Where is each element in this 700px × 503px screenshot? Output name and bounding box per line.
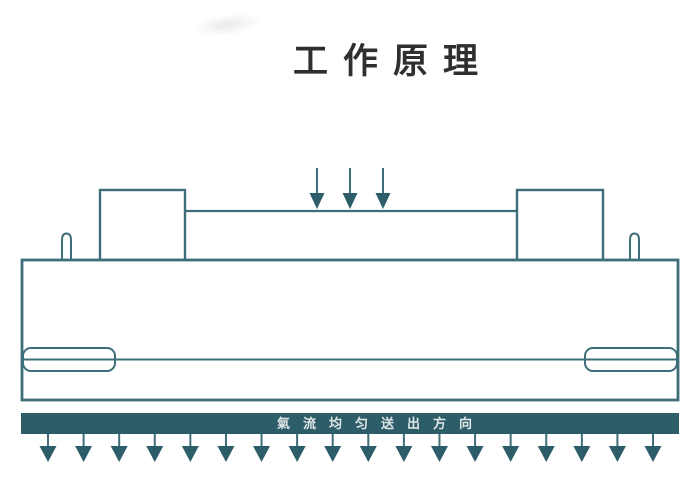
main-body-housing: [22, 260, 678, 400]
airflow-arrow-head: [111, 446, 128, 462]
bottom-outlet-airflow-arrows: [40, 434, 662, 462]
airflow-arrow-head: [360, 446, 377, 462]
right-pin: [630, 234, 639, 261]
airflow-arrow-head: [75, 446, 92, 462]
airflow-arrow-head: [310, 193, 325, 209]
airflow-arrow-head: [253, 446, 270, 462]
airflow-arrow-head: [609, 446, 626, 462]
airflow-arrow-head: [502, 446, 519, 462]
airflow-arrow-head: [217, 446, 234, 462]
airflow-arrow-head: [431, 446, 448, 462]
airflow-direction-label: 氣流均匀送出方向: [277, 415, 485, 433]
working-principle-page: 工作原理 氣流均匀送出方向: [0, 0, 700, 503]
left-pin: [62, 234, 71, 261]
airflow-arrow-head: [538, 446, 555, 462]
airflow-arrow-head: [376, 193, 391, 209]
airflow-arrow-head: [289, 446, 306, 462]
airflow-arrow-head: [324, 446, 341, 462]
airflow-arrow-head: [645, 446, 662, 462]
airflow-arrow-head: [40, 446, 57, 462]
airflow-arrow-head: [146, 446, 163, 462]
airflow-arrow-head: [467, 446, 484, 462]
airflow-arrow-head: [395, 446, 412, 462]
airflow-arrow-head: [573, 446, 590, 462]
right-top-housing-box: [517, 190, 603, 260]
airflow-arrow-head: [182, 446, 199, 462]
airflow-arrow-head: [343, 193, 358, 209]
left-top-housing-box: [100, 190, 185, 260]
top-inlet-airflow-arrows: [310, 168, 391, 209]
